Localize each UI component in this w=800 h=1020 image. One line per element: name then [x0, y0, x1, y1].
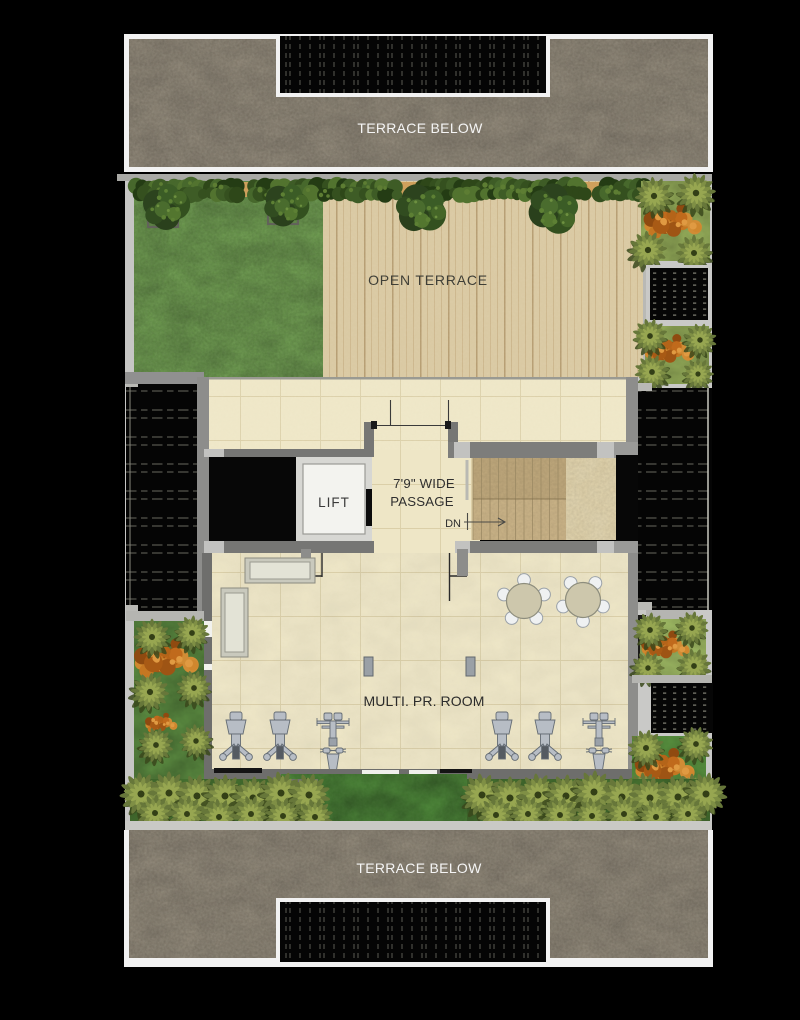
svg-text:TERRACE BELOW: TERRACE BELOW [356, 860, 482, 876]
svg-text:LIFT: LIFT [318, 495, 350, 510]
svg-text:7'9" WIDE: 7'9" WIDE [393, 476, 455, 491]
svg-text:MULTI. PR. ROOM: MULTI. PR. ROOM [363, 693, 484, 709]
svg-text:OPEN TERRACE: OPEN TERRACE [368, 272, 488, 288]
svg-text:DN: DN [445, 518, 461, 530]
svg-text:PASSAGE: PASSAGE [390, 494, 453, 509]
svg-text:TERRACE BELOW: TERRACE BELOW [357, 120, 483, 136]
